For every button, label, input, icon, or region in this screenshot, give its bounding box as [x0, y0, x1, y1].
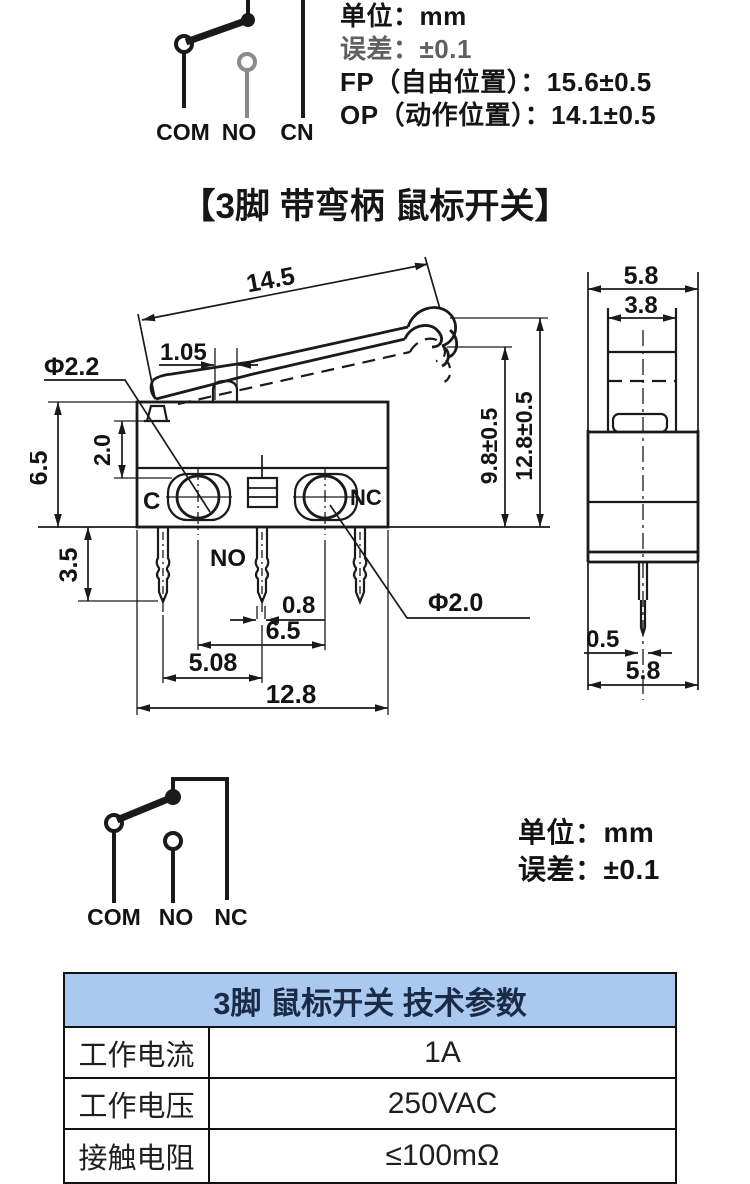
terminal-pins — [157, 527, 367, 612]
spec-table-title: 3脚 鼠标开关 技术参数 — [65, 974, 675, 1028]
switch-body — [137, 402, 388, 535]
front-view: 14.5 1.05 Φ2.2 6.5 2.0 — [30, 257, 550, 715]
dim-side-top-width: 5.8 — [624, 262, 659, 290]
dim-op-height: 9.8±0.5 — [476, 408, 502, 485]
bottom-schematic-no-label: NO — [159, 904, 194, 930]
dim-lever-length: 14.5 — [244, 262, 297, 298]
dim-plunger-width: 1.05 — [160, 339, 207, 366]
terminal-no-label: NO — [210, 545, 246, 572]
dim-mount-hole-dia: Φ2.0 — [428, 589, 483, 617]
spec-row-value: ≤100mΩ — [210, 1130, 675, 1182]
top-schematic-no-label: NO — [222, 119, 257, 145]
operating-position-note: OP（动作位置）：14.1±0.5 — [340, 99, 750, 132]
bottom-circuit-schematic: COM NO NC — [80, 755, 260, 930]
terminal-nc-label: NC — [350, 485, 382, 510]
front-view-dimensions: 14.5 1.05 Φ2.2 6.5 2.0 — [30, 257, 548, 715]
unit-note-bottom: 单位：mm — [518, 814, 660, 851]
table-row: 接触电阻 ≤100mΩ — [65, 1130, 675, 1182]
dim-pin-width: 0.8 — [282, 592, 315, 619]
top-schematic-com-label: COM — [156, 119, 210, 145]
top-circuit-schematic: COM NO CN — [110, 0, 330, 150]
spec-row-value: 250VAC — [210, 1079, 675, 1128]
spec-row-label: 接触电阻 — [65, 1130, 210, 1182]
spec-row-label: 工作电流 — [65, 1028, 210, 1077]
dim-hole-span: 6.5 — [266, 617, 301, 645]
free-position-note: FP（自由位置）：15.6±0.5 — [340, 66, 750, 99]
bottom-schematic-lines — [106, 779, 227, 903]
technical-drawing: 14.5 1.05 Φ2.2 6.5 2.0 — [30, 240, 720, 725]
page-title: 【3脚 带弯柄 鼠标开关】 — [0, 178, 750, 229]
top-schematic-lines — [176, 0, 303, 118]
side-view: 5.8 3.8 0.5 5.8 — [584, 262, 698, 700]
dim-pin-length: 3.5 — [55, 548, 83, 583]
bottom-schematic-nc-label: NC — [214, 904, 247, 930]
tolerance-note: 误差：±0.1 — [340, 33, 750, 66]
dim-side-lever-width: 3.8 — [624, 292, 657, 319]
dim-body-height: 6.5 — [30, 451, 53, 486]
tolerance-note-bottom: 误差：±0.1 — [518, 851, 660, 888]
product-spec-sheet: COM NO CN 单位：mm 误差：±0.1 FP（自由位置）：15.6±0.… — [0, 0, 750, 1161]
bottom-spec-notes: 单位：mm 误差：±0.1 — [518, 814, 660, 888]
dim-pin-pitch: 5.08 — [189, 649, 238, 677]
dim-side-bottom-width: 5.8 — [626, 657, 661, 685]
dim-side-pin-thickness: 0.5 — [586, 626, 619, 653]
dim-pivot-hole-dia: Φ2.2 — [44, 353, 99, 381]
table-row: 工作电流 1A — [65, 1028, 675, 1079]
dim-body-width: 12.8 — [266, 679, 317, 709]
plunger — [213, 381, 237, 402]
spec-row-label: 工作电压 — [65, 1079, 210, 1128]
unit-note: 单位：mm — [340, 0, 750, 33]
top-schematic-cn-label: CN — [280, 119, 313, 145]
bottom-schematic-com-label: COM — [87, 904, 141, 930]
dim-free-height: 12.8±0.5 — [511, 391, 537, 481]
spec-table: 3脚 鼠标开关 技术参数 工作电流 1A 工作电压 250VAC 接触电阻 ≤1… — [63, 972, 677, 1184]
dim-hole-offset: 2.0 — [89, 434, 115, 466]
terminal-c-label: C — [143, 488, 160, 515]
table-row: 工作电压 250VAC — [65, 1079, 675, 1130]
top-spec-notes: 单位：mm 误差：±0.1 FP（自由位置）：15.6±0.5 OP（动作位置）… — [340, 0, 750, 132]
spec-row-value: 1A — [210, 1028, 675, 1077]
